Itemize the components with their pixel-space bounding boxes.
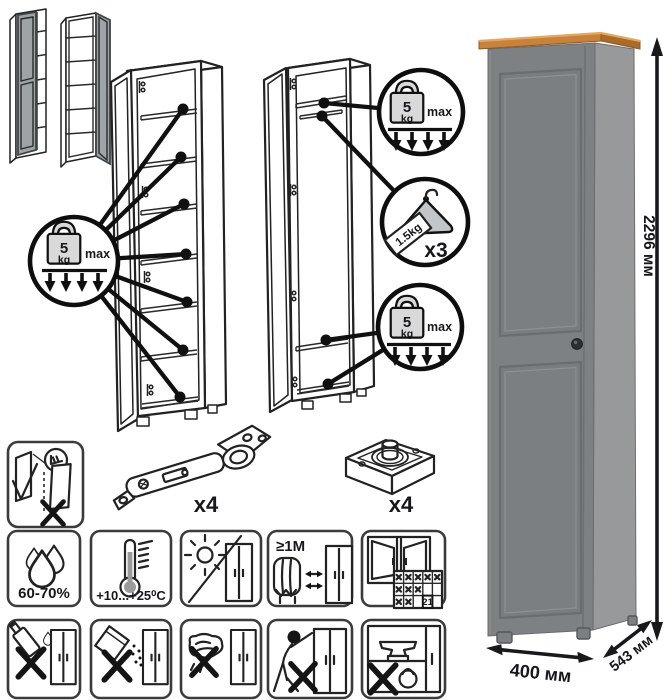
kettlebell-icon bbox=[400, 669, 417, 688]
top-load-qualifier: max bbox=[427, 105, 452, 119]
door-knob[interactable] bbox=[572, 339, 583, 350]
width-label: 400 мм bbox=[509, 660, 572, 686]
sun-icon bbox=[185, 535, 225, 575]
hinge-drawing bbox=[105, 422, 278, 510]
icon-no-sunlight bbox=[181, 531, 261, 606]
dimension-depth: 543 мм bbox=[603, 620, 656, 675]
calendar-icon: 21 bbox=[394, 571, 442, 608]
icon-no-heavy-load bbox=[362, 620, 445, 698]
icon-temperature: +10...+25⁰C bbox=[91, 531, 171, 606]
cabinet-icon bbox=[231, 630, 256, 684]
height-label: 2296 мм bbox=[640, 215, 657, 277]
top-load-unit: kg bbox=[401, 113, 413, 125]
distance-label: ≥1М bbox=[276, 538, 305, 555]
cabinet-icon bbox=[51, 630, 76, 684]
hinge-hardware: x4 bbox=[105, 422, 278, 517]
shelf-load-circle: 5 kg max bbox=[30, 217, 118, 305]
hinge-qty: x4 bbox=[194, 492, 219, 517]
thumbnail-cabinet-closed bbox=[10, 9, 46, 163]
icon-no-wet-cleaning bbox=[181, 620, 261, 698]
cabinet-icon bbox=[314, 629, 346, 693]
icon-no-abrasives bbox=[91, 620, 171, 698]
cabinet-icon bbox=[326, 546, 352, 603]
bottom-load-circle: 5 kg max bbox=[378, 285, 462, 369]
calendar-day: 21 bbox=[422, 597, 433, 608]
instruction-sheet-canvas: 5 kg max 5 kg bbox=[0, 0, 672, 700]
cabinet-icon bbox=[226, 544, 252, 601]
temperature-label: +10...+25⁰C bbox=[96, 588, 166, 603]
shelf-load-qualifier: max bbox=[85, 247, 110, 261]
knob-highlight bbox=[574, 341, 577, 344]
leg-hardware: x4 bbox=[346, 440, 434, 517]
hanger-count: x3 bbox=[424, 239, 447, 262]
instruction-sheet: 5 kg max 5 kg bbox=[0, 0, 672, 700]
dimension-width: 400 мм bbox=[486, 644, 594, 686]
cabinet-icon bbox=[143, 630, 168, 684]
icon-no-solvents bbox=[6, 619, 80, 698]
shelf-load-unit: kg bbox=[58, 254, 70, 266]
bottom-load-unit: kg bbox=[401, 328, 413, 340]
icon-no-dragging bbox=[268, 620, 352, 698]
product-render bbox=[479, 33, 640, 643]
icon-ventilation-calendar: 21 bbox=[362, 531, 445, 608]
bottom-load-qualifier: max bbox=[427, 320, 452, 334]
humidity-label: 60-70% bbox=[18, 585, 70, 602]
icon-heat-distance: ≥1М bbox=[268, 531, 352, 606]
wardrobe-side-face bbox=[593, 43, 636, 630]
leg-drawing bbox=[346, 440, 434, 494]
leg-qty: x4 bbox=[389, 492, 414, 517]
icon-wall-mount-warning bbox=[8, 442, 83, 527]
icon-humidity: 60-70% bbox=[8, 531, 80, 606]
top-shelf-load-circle: 5 kg max bbox=[379, 70, 463, 154]
dimension-height: 2296 мм bbox=[640, 37, 663, 641]
thumbnail-cabinet-open bbox=[61, 13, 110, 167]
hanger-load-circle: 1.5kg x3 bbox=[382, 179, 468, 265]
thumbnail-open-door bbox=[96, 13, 110, 164]
